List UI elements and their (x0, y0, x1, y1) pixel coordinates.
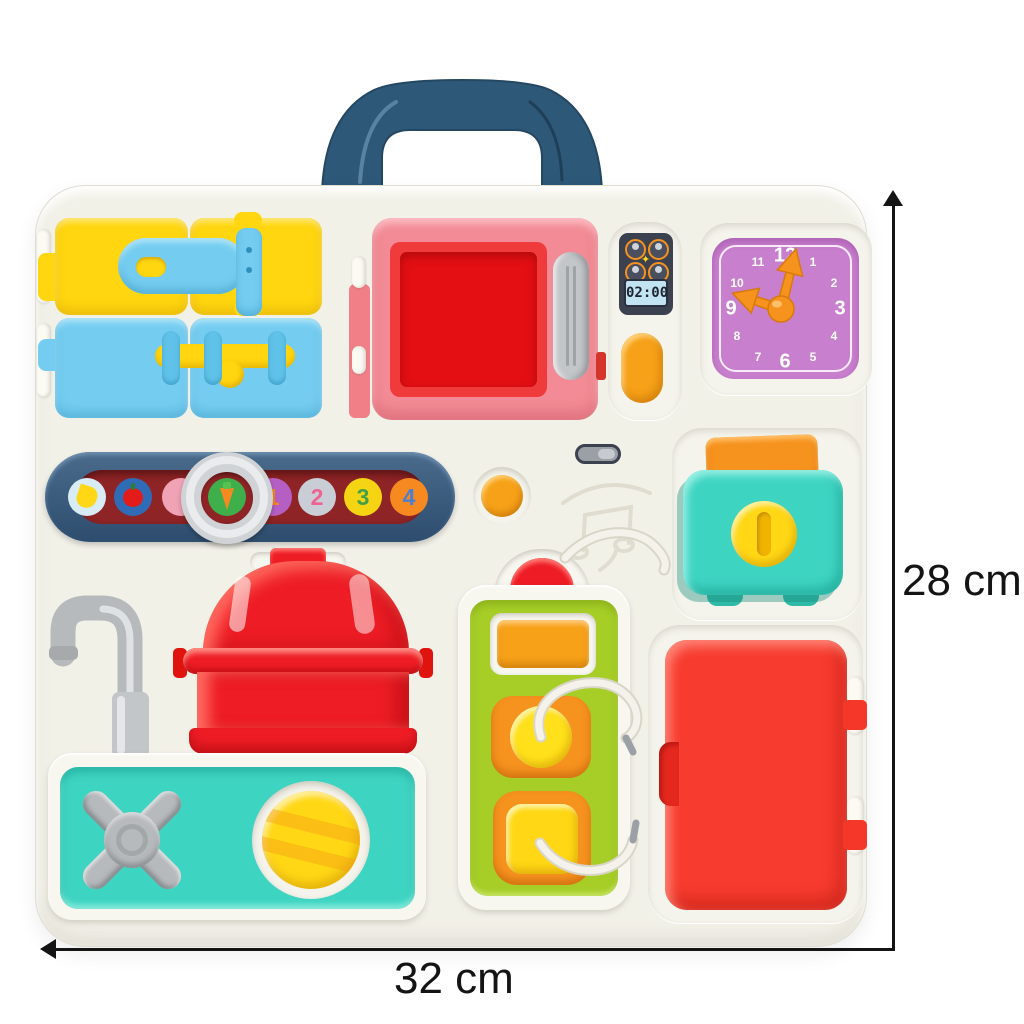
star-icon: ✦ (641, 253, 650, 266)
pot-base (189, 728, 417, 754)
product-photo-busy-board: ✦ 02:00 12 1 2 3 4 5 6 7 8 9 10 11 (0, 0, 1024, 1024)
clock-hands (712, 238, 859, 379)
height-label: 28 cm (902, 556, 1022, 606)
banana-icon (68, 478, 106, 516)
microwave-latch (596, 352, 606, 380)
latch-hole (246, 267, 252, 273)
control-panel: ✦ 02:00 (619, 233, 673, 315)
drink-icon (648, 239, 669, 260)
slider-ring-highlight (186, 456, 268, 538)
round-button-orange (481, 475, 523, 517)
slider-number-3: 3 (344, 478, 382, 516)
fridge-hinge (843, 820, 867, 850)
clock-face: 12 1 2 3 4 5 6 7 8 9 10 11 (712, 238, 859, 379)
height-dimension-line (892, 204, 895, 951)
apple-icon (114, 478, 152, 516)
microwave-handle (553, 252, 589, 380)
timer-display: 02:00 (624, 279, 668, 307)
handle-groove (573, 266, 576, 366)
fridge-hinge (843, 700, 867, 730)
handle-groove (566, 266, 569, 366)
start-button-orange (621, 333, 663, 403)
fridge-handle (659, 742, 679, 806)
latch-hole (246, 247, 252, 253)
bolt-bracket (204, 331, 222, 385)
slider-number-4: 4 (390, 478, 428, 516)
faucet (35, 580, 165, 770)
toaster-knob (731, 501, 797, 567)
width-label: 32 cm (394, 954, 514, 1004)
hinge-pin (352, 346, 366, 374)
height-arrow-up (883, 190, 903, 206)
latch-knob-yellow-top (234, 212, 262, 228)
width-dimension-line (56, 948, 895, 951)
carry-handle (312, 72, 612, 192)
width-arrow-left (40, 939, 56, 959)
fridge-door (665, 640, 847, 910)
latch-keyhole (136, 257, 166, 277)
pot-rim (183, 648, 423, 674)
pot-body (197, 672, 409, 732)
tap-handle (68, 776, 196, 904)
microwave-window (400, 252, 537, 387)
bolt-bracket (268, 331, 286, 385)
sink-knob-yellow (262, 791, 360, 889)
slider-number-2: 2 (298, 478, 336, 516)
bolt-bracket (162, 331, 180, 385)
hinge-pin (352, 256, 366, 288)
